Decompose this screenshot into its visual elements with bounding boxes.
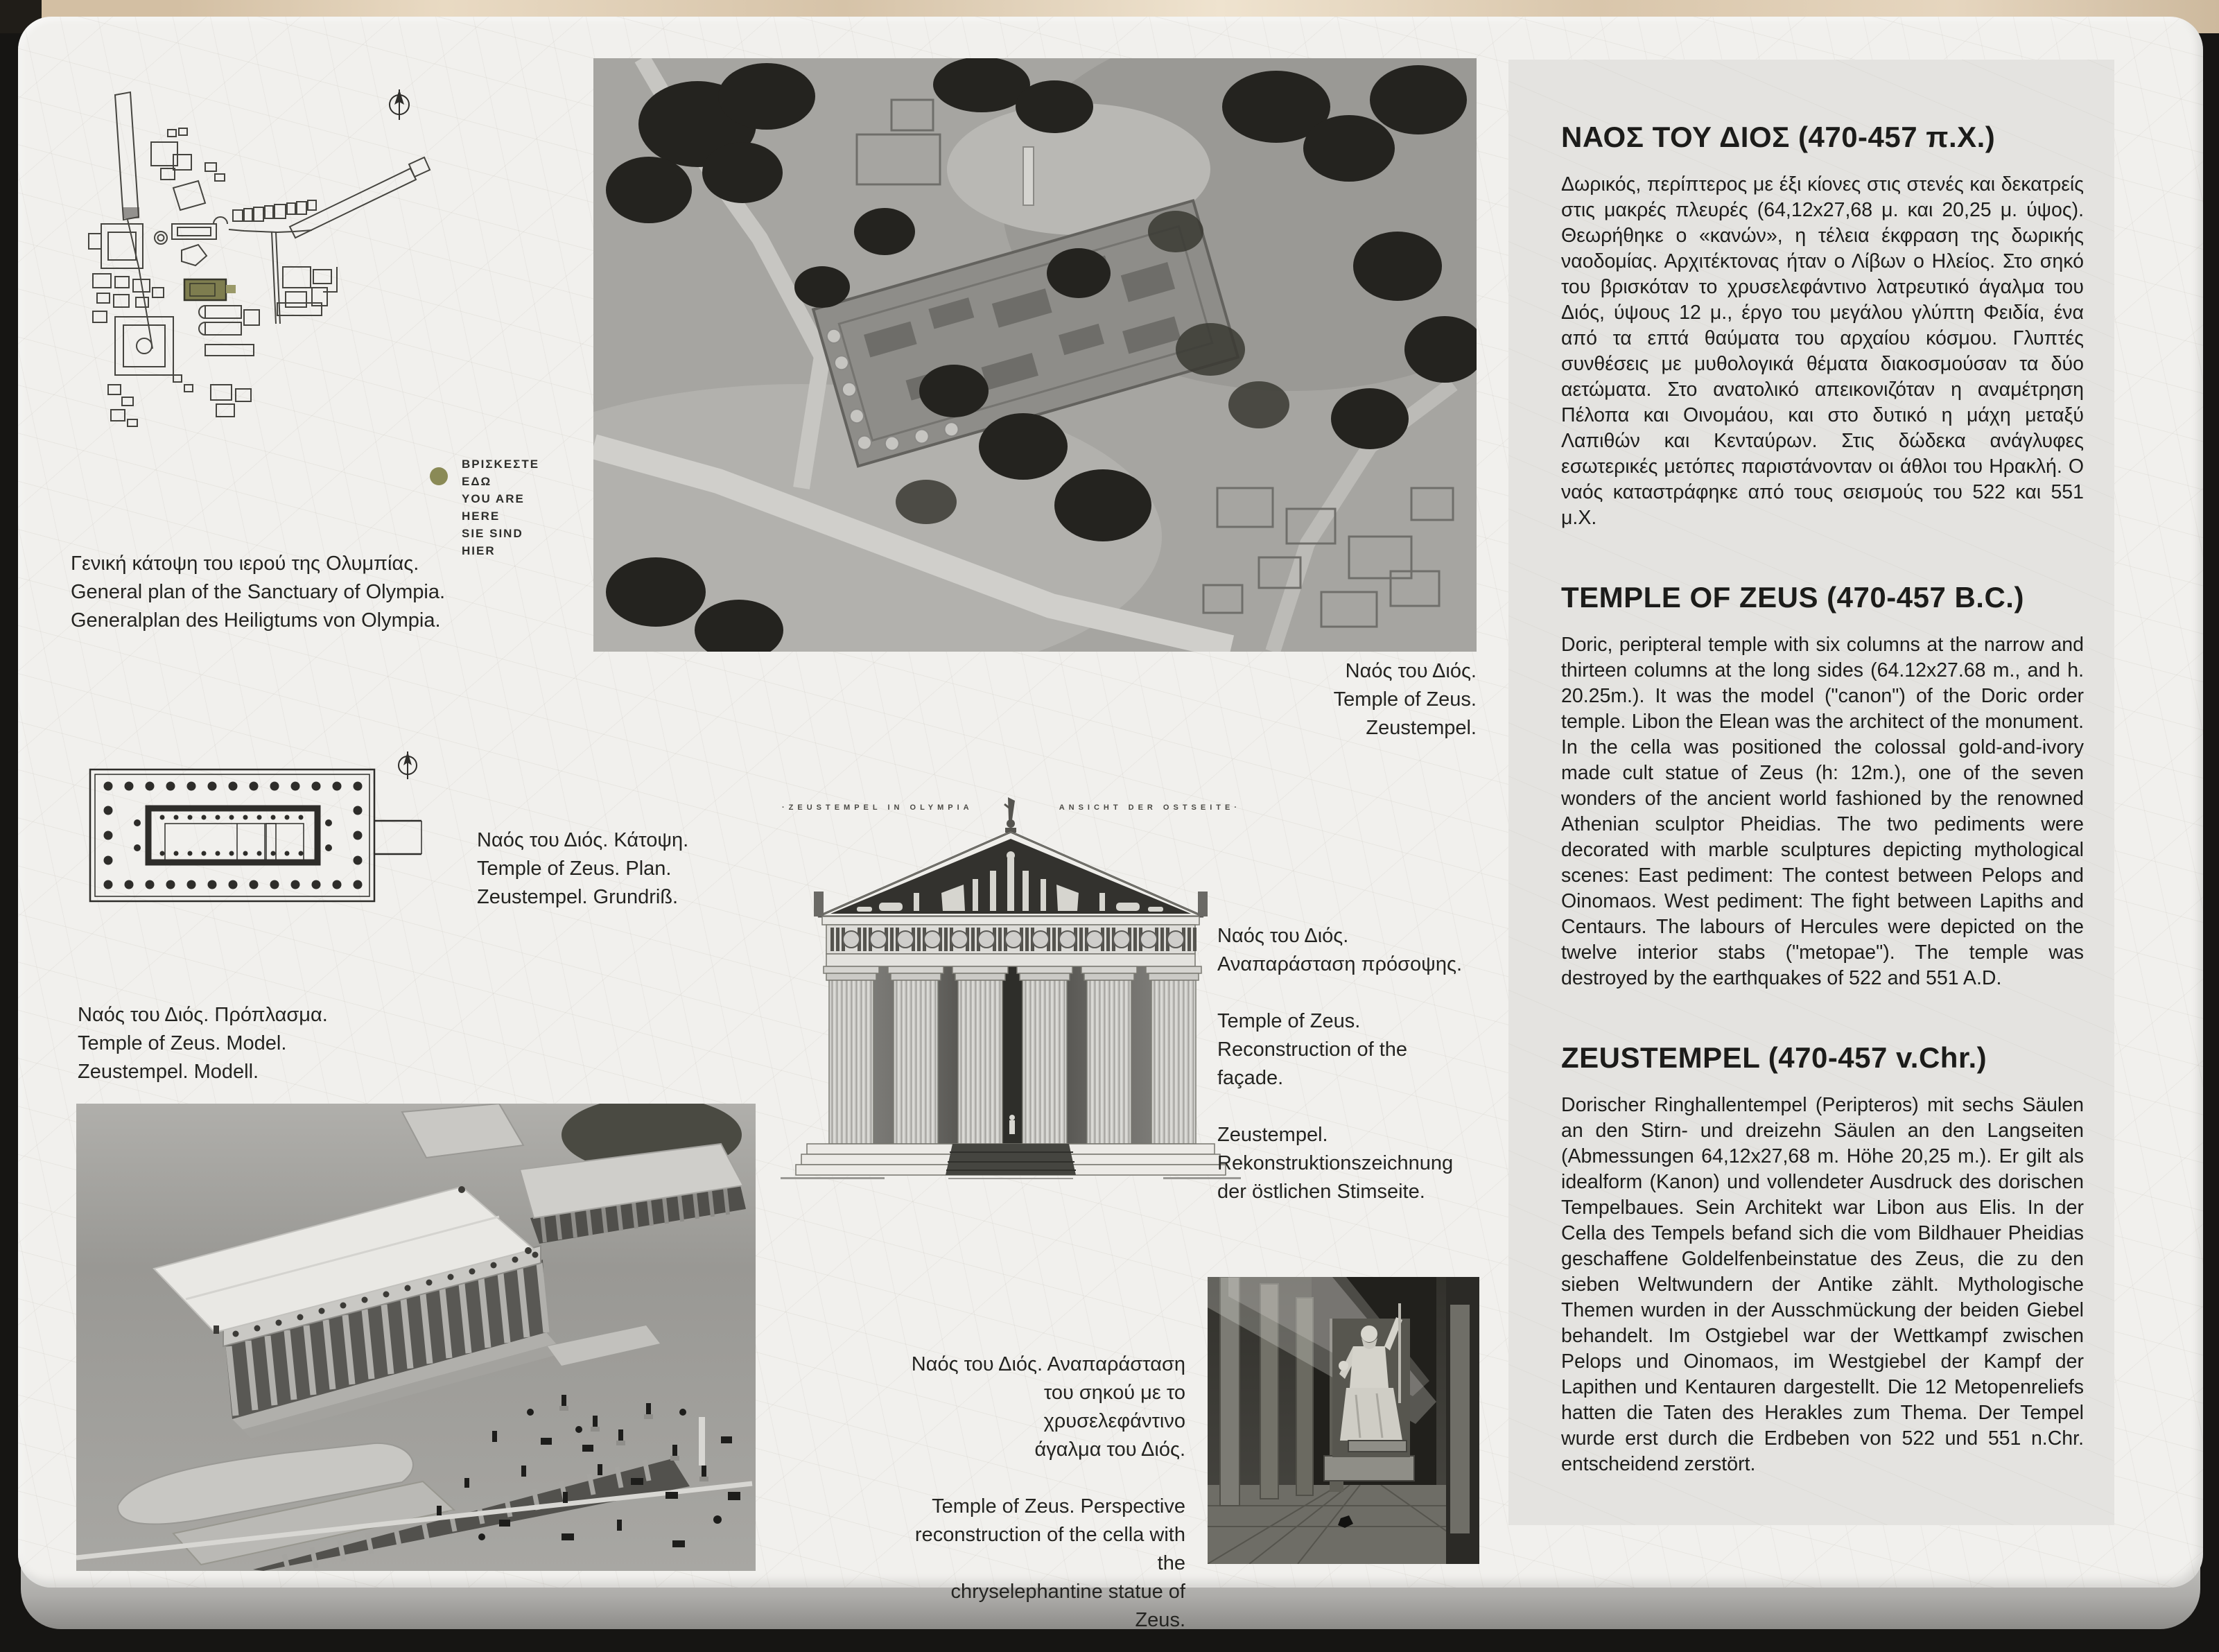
info-body-greek: Δωρικός, περίπτερος με έξι κίονες στις σ… — [1561, 172, 2084, 531]
cella-caption: Ναός του Διός. Αναπαράσταση του σηκού με… — [904, 1350, 1185, 1652]
microtext-marks — [781, 1177, 1241, 1179]
nike-acroterion — [1004, 797, 1016, 833]
compass-icon — [390, 89, 409, 120]
model-caption: Ναός του Διός. Πρόπλασμα. Temple of Zeus… — [78, 1001, 438, 1086]
facade-caption: Ναός του Διός. Αναπαράσταση πρόσοψης. Te… — [1217, 922, 1502, 1206]
you-are-here-marker — [430, 467, 448, 485]
cella-engraving — [1208, 1277, 1479, 1564]
info-section-greek: ΝΑΟΣ ΤΟΥ ΔΙΟΣ (470-457 π.Χ.) Δωρικός, πε… — [1561, 121, 2084, 531]
info-section-german: ZEUSTEMPEL (470-457 v.Chr.) Dorischer Ri… — [1561, 1041, 2084, 1477]
info-heading-german: ZEUSTEMPEL (470-457 v.Chr.) — [1561, 1041, 2084, 1075]
facade-figure: ·ZEUSTEMPEL IN OLYMPIA ANSICHT DER OSTSE… — [775, 789, 1246, 1181]
entablature — [822, 916, 1199, 966]
facade-plate-title-right: ANSICHT DER OSTSEITE· — [1059, 803, 1241, 812]
info-section-english: TEMPLE OF ZEUS (470-457 B.C.) Doric, per… — [1561, 581, 2084, 991]
floor-plan-figure — [87, 750, 476, 923]
info-heading-english: TEMPLE OF ZEUS (470-457 B.C.) — [1561, 581, 2084, 614]
colonnade-dots — [104, 782, 363, 889]
model-photo — [76, 1104, 756, 1571]
site-plan-caption: Γενική κάτοψη του ιερού της Ολυμπίας. Ge… — [71, 550, 501, 635]
site-plan-figure: ΒΡΙΣΚΕΣΤΕ ΕΔΩ YOU ARE HERE SIE SIND HIER — [69, 59, 513, 544]
temple-of-zeus-on-plan — [184, 279, 236, 300]
floor-plan-caption: Ναός του Διός. Κάτοψη. Temple of Zeus. P… — [477, 826, 768, 912]
info-heading-greek: ΝΑΟΣ ΤΟΥ ΔΙΟΣ (470-457 π.Χ.) — [1561, 121, 2084, 154]
cella-door-figure — [1009, 1115, 1015, 1134]
sign-photo: ΒΡΙΣΚΕΣΤΕ ΕΔΩ YOU ARE HERE SIE SIND HIER… — [0, 0, 2219, 1652]
info-column: ΝΑΟΣ ΤΟΥ ΔΙΟΣ (470-457 π.Χ.) Δωρικός, πε… — [1508, 60, 2114, 1525]
you-are-here-label: ΒΡΙΣΚΕΣΤΕ ΕΔΩ YOU ARE HERE SIE SIND HIER — [462, 455, 539, 559]
aerial-caption: Ναός του Διός. Temple of Zeus. Zeustempe… — [1199, 657, 1477, 742]
aerial-photo — [593, 58, 1477, 652]
facade-plate-title-left: ·ZEUSTEMPEL IN OLYMPIA — [782, 803, 973, 812]
compass-icon — [399, 751, 417, 779]
info-body-german: Dorischer Ringhallentempel (Peripteros) … — [1561, 1093, 2084, 1477]
info-body-english: Doric, peripteral temple with six column… — [1561, 632, 2084, 991]
information-panel: ΒΡΙΣΚΕΣΤΕ ΕΔΩ YOU ARE HERE SIE SIND HIER… — [18, 17, 2203, 1588]
zeus-statue — [1324, 1303, 1414, 1481]
pediment — [818, 832, 1203, 916]
